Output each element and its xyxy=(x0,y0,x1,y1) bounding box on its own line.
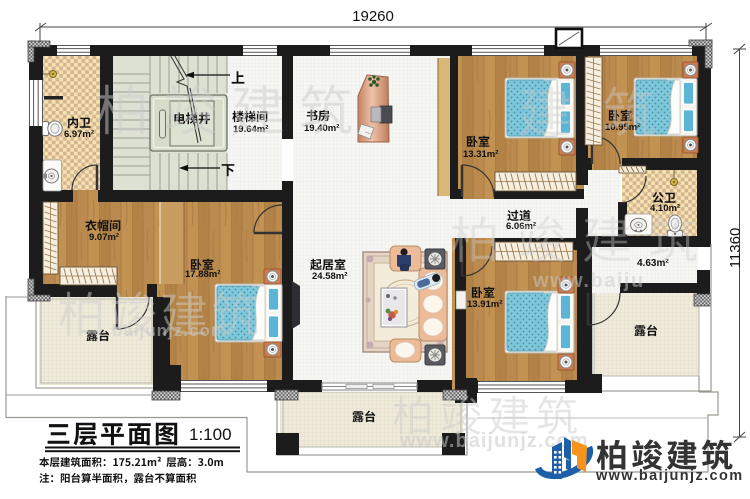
svg-text:13.91m²: 13.91m² xyxy=(467,299,502,310)
svg-text:1:100: 1:100 xyxy=(189,425,232,444)
svg-text:19260: 19260 xyxy=(352,8,394,25)
svg-text:www.baiju: www.baiju xyxy=(532,270,645,292)
svg-text:6.97m²: 6.97m² xyxy=(64,129,94,140)
svg-text:17.88m²: 17.88m² xyxy=(185,269,220,280)
svg-text:baijunjz.com: baijunjz.com xyxy=(112,321,227,340)
svg-text:13.31m²: 13.31m² xyxy=(463,149,498,160)
svg-text:4.10m²: 4.10m² xyxy=(650,203,680,214)
svg-text:www.baijunjz.com: www.baijunjz.com xyxy=(595,468,744,484)
svg-text:11360: 11360 xyxy=(727,228,744,269)
svg-text:24.58m²: 24.58m² xyxy=(312,271,347,282)
svg-text:9.07m²: 9.07m² xyxy=(89,232,119,243)
